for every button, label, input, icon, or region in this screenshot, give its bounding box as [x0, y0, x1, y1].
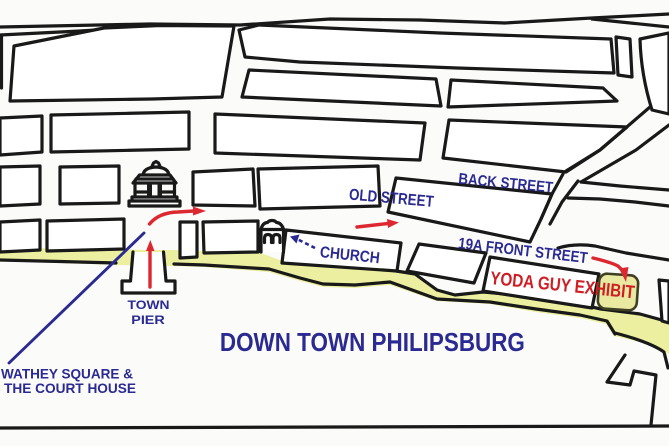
svg-text:DOWN TOWN PHILIPSBURG: DOWN TOWN PHILIPSBURG	[220, 329, 525, 357]
svg-text:WATHEY SQUARE &: WATHEY SQUARE &	[1, 365, 133, 381]
svg-text:THE COURT HOUSE: THE COURT HOUSE	[4, 381, 136, 396]
svg-text:PIER: PIER	[131, 313, 165, 327]
svg-text:TOWN: TOWN	[128, 298, 170, 312]
